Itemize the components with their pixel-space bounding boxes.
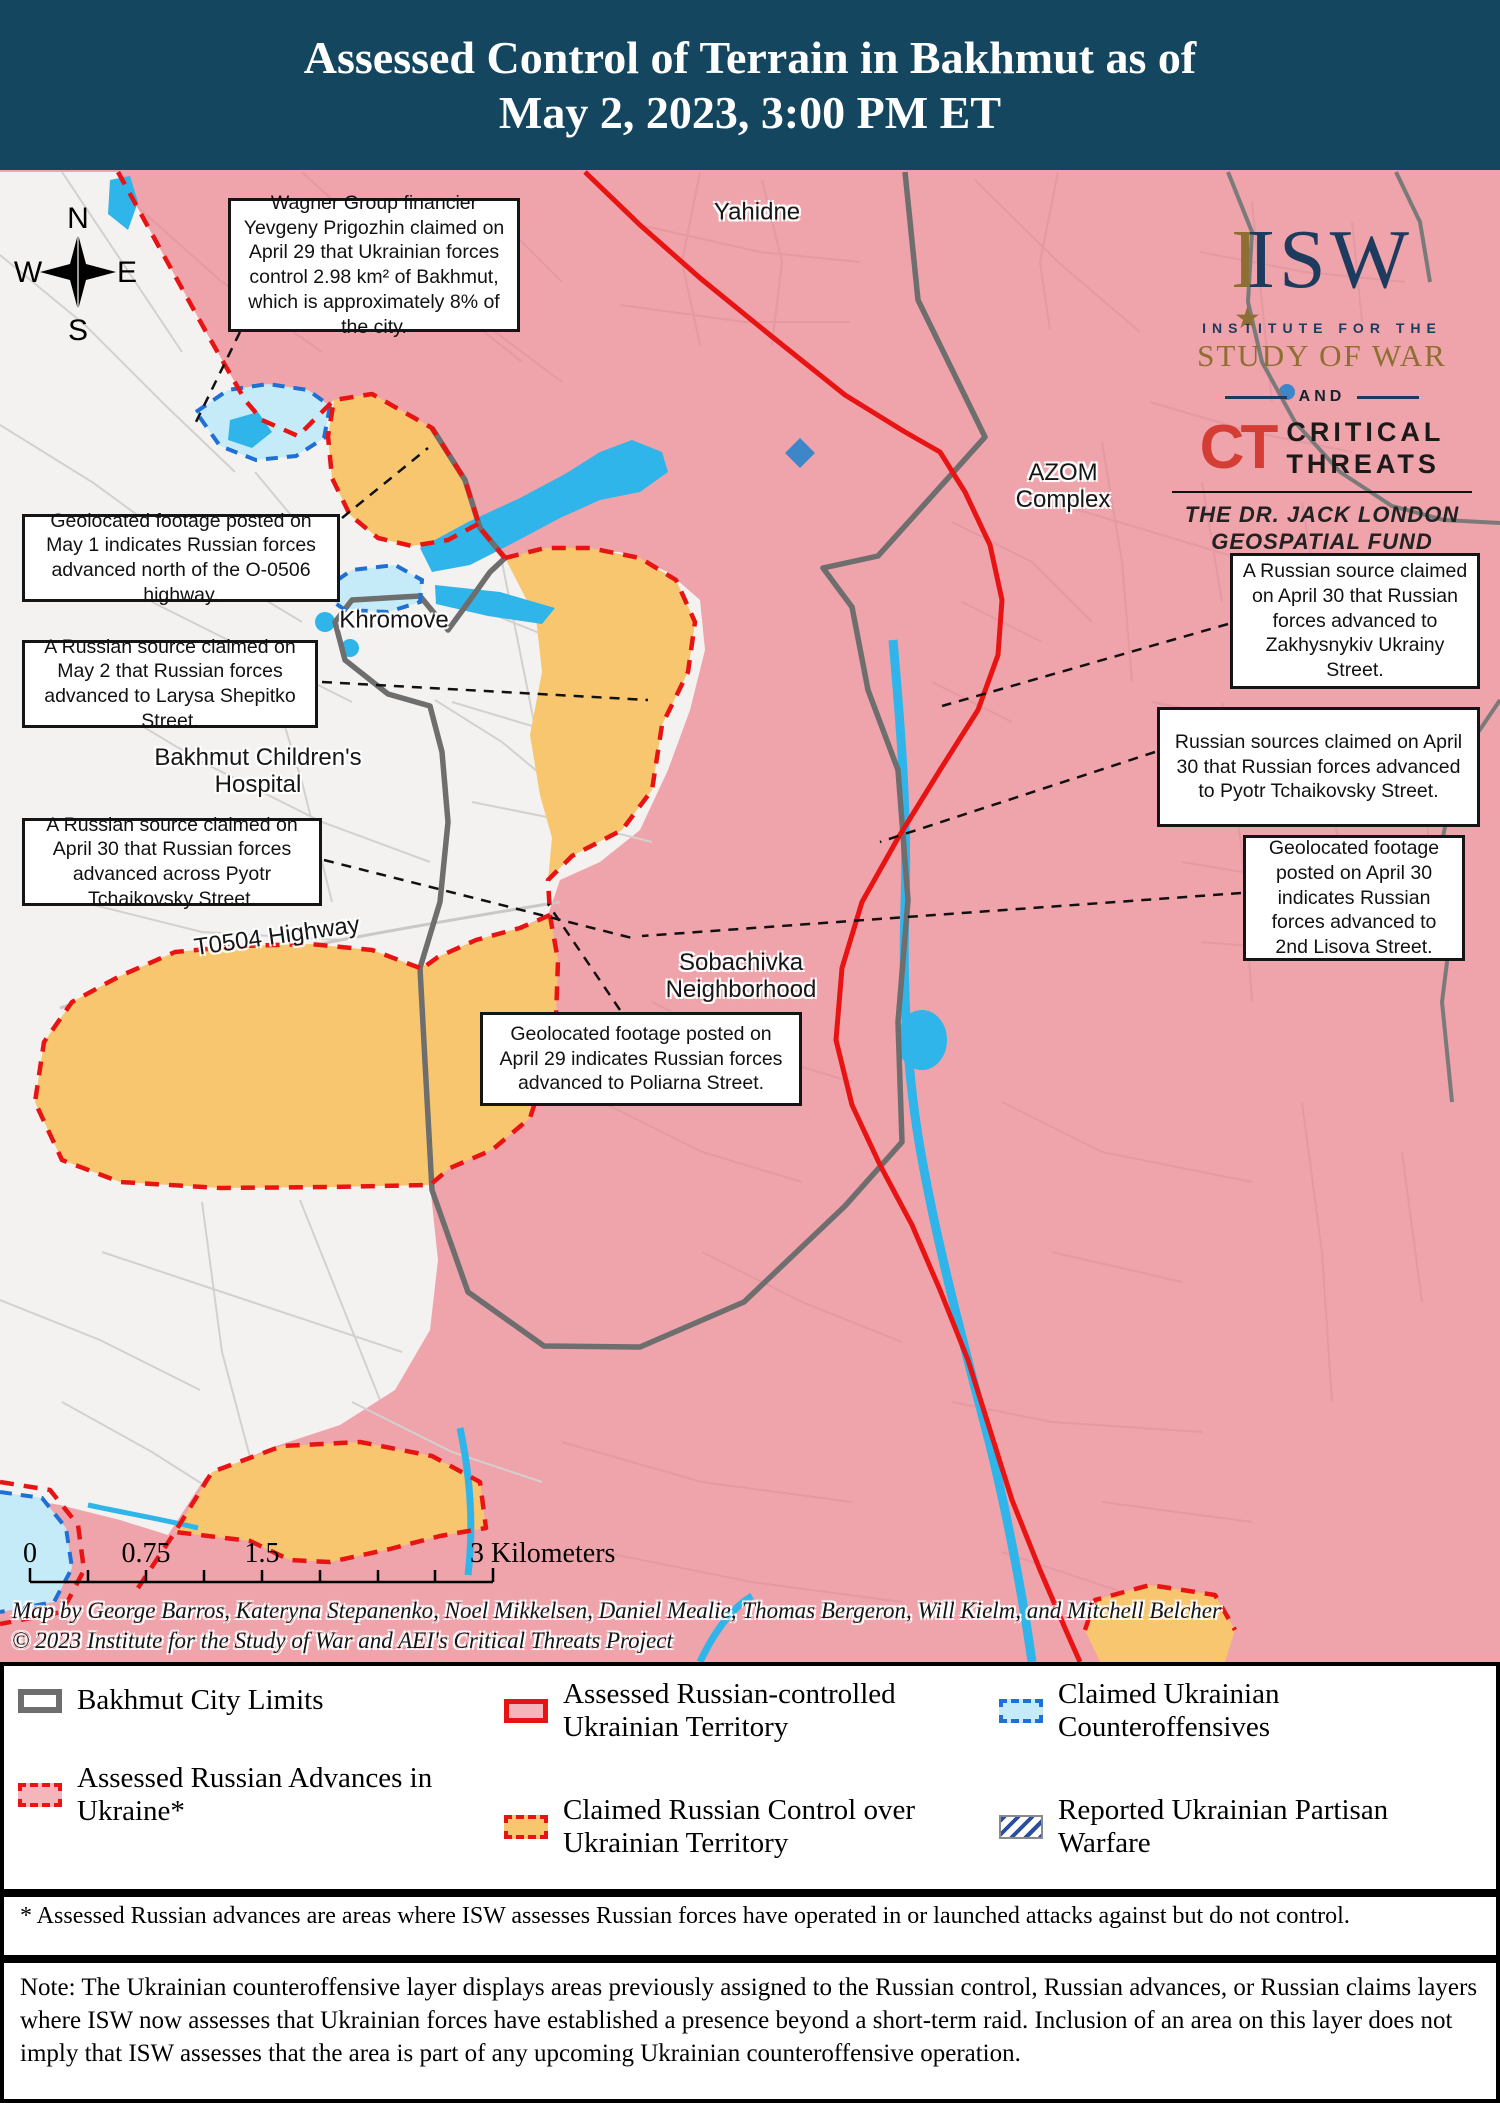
russian-advances-swatch-icon <box>18 1783 62 1807</box>
isw-bakhmut-map-page: Assessed Control of Terrain in Bakhmut a… <box>0 0 1500 2103</box>
legend-label: Bakhmut City Limits <box>77 1684 324 1717</box>
title-bar: Assessed Control of Terrain in Bakhmut a… <box>0 0 1500 170</box>
legend-item-ukrainian-counteroffensives: Claimed Ukrainian Counteroffensives <box>999 1678 1348 1745</box>
claimed-russian-swatch-icon <box>504 1815 548 1839</box>
geospatial-fund-credit: THE DR. JACK LONDONGEOSPATIAL FUND <box>1148 501 1496 556</box>
compass-s: S <box>68 314 88 347</box>
institute-for-the: INSTITUTE FOR THE <box>1148 320 1496 336</box>
callout-apr29-poliarna: Geolocated footage posted on April 29 in… <box>480 1012 802 1106</box>
critical-threats-wordmark: CRITICALTHREATS <box>1286 416 1444 481</box>
callout-apr30-pyotr: Russian sources claimed on April 30 that… <box>1157 707 1480 827</box>
study-of-war: STUDY OF WAR <box>1148 338 1496 374</box>
isw-wordmark: IISW ★ <box>1148 218 1496 310</box>
isw-ct-logo: IISW ★ INSTITUTE FOR THE STUDY OF WAR AN… <box>1148 218 1496 556</box>
legend-item-russian-controlled: Assessed Russian-controlled Ukrainian Te… <box>504 1678 933 1745</box>
legend-item-claimed-russian-control: Claimed Russian Control over Ukrainian T… <box>504 1794 943 1861</box>
callout-apr30-across-pyotr: A Russian source claimed on April 30 tha… <box>22 818 322 906</box>
compass-e: E <box>117 256 137 289</box>
title-line-2: May 2, 2023, 3:00 PM ET <box>499 87 1001 138</box>
legend-item-russian-advances: Assessed Russian Advances in Ukraine* <box>18 1762 447 1829</box>
logo-rule <box>1172 491 1472 493</box>
label-childrens-hospital: Bakhmut Children'sHospital <box>154 745 361 799</box>
legend-label: Claimed Russian Control over Ukrainian T… <box>563 1794 943 1861</box>
label-khromove: Khromove <box>339 608 448 635</box>
map-credits: Map by George Barros, Kateryna Stepanenk… <box>12 1596 1221 1656</box>
page-title: Assessed Control of Terrain in Bakhmut a… <box>304 30 1196 140</box>
divider-line-left <box>1225 396 1287 399</box>
compass-n: N <box>67 202 89 235</box>
title-line-1: Assessed Control of Terrain in Bakhmut a… <box>304 32 1196 83</box>
callout-wagner-claim: Wagner Group financier Yevgeny Prigozhin… <box>228 198 520 332</box>
scale-3km: 3 Kilometers <box>470 1538 615 1569</box>
callout-may1-o0506: Geolocated footage posted on May 1 indic… <box>22 514 340 602</box>
legend-label: Assessed Russian-controlled Ukrainian Te… <box>563 1678 933 1745</box>
scale-075: 0.75 <box>122 1538 171 1569</box>
partisan-warfare-swatch-icon <box>999 1815 1043 1839</box>
label-sobachivka: SobachivkaNeighborhood <box>666 950 817 1004</box>
label-yahidne: Yahidne <box>714 200 800 227</box>
russian-controlled-swatch-icon <box>504 1699 548 1723</box>
credits-copyright: © 2023 Institute for the Study of War an… <box>12 1628 673 1653</box>
ct-monogram-icon: CT <box>1200 420 1275 476</box>
legend: Bakhmut City Limits Assessed Russian Adv… <box>0 1662 1500 1893</box>
credits-authors: Map by George Barros, Kateryna Stepanenk… <box>12 1598 1221 1623</box>
legend-label: Claimed Ukrainian Counteroffensives <box>1058 1678 1348 1745</box>
and-label: AND <box>1299 388 1346 406</box>
advances-footnote: * Assessed Russian advances are areas wh… <box>0 1893 1500 1959</box>
legend-item-partisan-warfare: Reported Ukrainian Partisan Warfare <box>999 1794 1458 1861</box>
legend-item-city-limits: Bakhmut City Limits <box>18 1684 324 1717</box>
legend-label: Assessed Russian Advances in Ukraine* <box>77 1762 447 1829</box>
label-azom-complex: AZOMComplex <box>1016 460 1111 514</box>
critical-threats-logo: CT CRITICALTHREATS <box>1148 416 1496 481</box>
scale-0: 0 <box>23 1538 37 1569</box>
scale-15: 1.5 <box>245 1538 280 1569</box>
star-icon: ★ <box>1234 301 1261 336</box>
divider-line-right <box>1357 396 1419 399</box>
city-limits-swatch-icon <box>18 1689 62 1713</box>
callout-apr30-lisova: Geolocated footage posted on April 30 in… <box>1243 835 1465 961</box>
and-divider: AND <box>1148 388 1496 406</box>
counteroffensives-swatch-icon <box>999 1699 1043 1723</box>
callout-apr30-zakhysnykiv: A Russian source claimed on April 30 tha… <box>1230 553 1480 689</box>
isw-letters: ISW <box>1247 218 1413 302</box>
compass-w: W <box>14 256 43 289</box>
callout-may2-shepitko: A Russian source claimed on May 2 that R… <box>22 640 318 728</box>
counteroffensive-note: Note: The Ukrainian counteroffensive lay… <box>0 1959 1500 2103</box>
legend-label: Reported Ukrainian Partisan Warfare <box>1058 1794 1458 1861</box>
